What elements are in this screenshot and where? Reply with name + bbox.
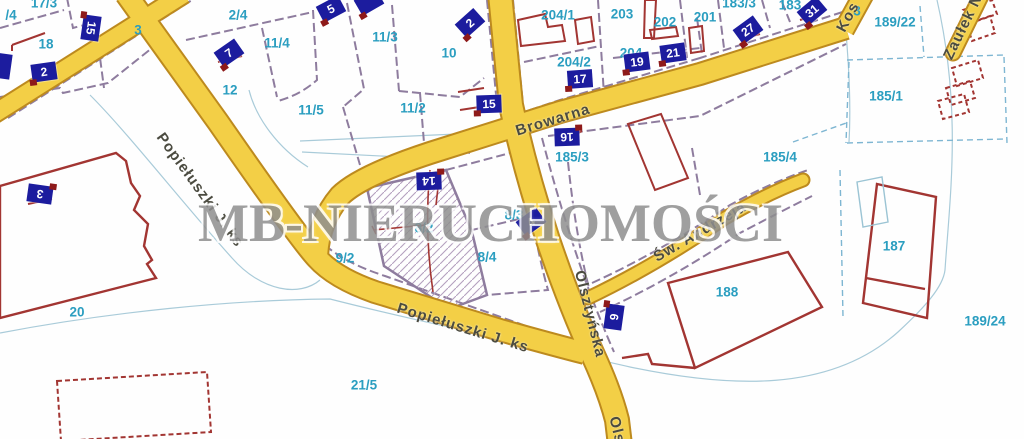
parcel-number-label: 20 (69, 305, 84, 320)
parcel-number-label: 9/2 (336, 251, 355, 266)
parcel-number-label: 11/4 (264, 36, 290, 51)
parcel-number-label: 3 (134, 23, 142, 38)
parcel-number-label: 203 (611, 7, 634, 22)
parcel-number-label: 8/2 (415, 221, 434, 236)
parcel-number-label: 17/3 (31, 0, 57, 11)
house-number-badge: 19 (623, 52, 650, 73)
house-number-badge: 6 (603, 303, 624, 330)
parcel-number-label: 202 (654, 15, 677, 30)
parcel-number-label: 185/1 (869, 89, 903, 104)
house-number-badge: 2 (30, 61, 57, 82)
house-number-badge: 21 (659, 42, 686, 63)
house-number-badge: 14 (416, 172, 442, 191)
parcel-number-label: 11/2 (400, 101, 426, 116)
parcel-number-label: 189/22 (874, 15, 915, 30)
parcel-number-label: 12 (222, 83, 237, 98)
parcel-number-label: 21/5 (351, 378, 377, 393)
parcel-number-label: 187 (883, 239, 906, 254)
parcel-number-label: 11/5 (298, 103, 324, 118)
house-number-badge: 16 (554, 128, 580, 147)
house-number-badge: 15 (80, 14, 101, 41)
dashed-parcel-lines-blue (793, 6, 1007, 317)
parcel-number-label: 8/4 (478, 250, 497, 265)
parcel-number-label: /4 (5, 8, 16, 23)
parcel-number-label: 2/4 (229, 8, 248, 23)
parcel-number-label: 10 (441, 46, 456, 61)
parcel-number-label: 183/3 (722, 0, 756, 11)
parcel-number-label: 18 (38, 37, 53, 52)
parcel-number-label: 185/4 (763, 150, 797, 165)
house-number-badge: 17 (567, 69, 593, 89)
road-fills (0, 0, 982, 439)
parcel-number-label: 204/1 (541, 8, 575, 23)
cadastral-map[interactable]: 17/3/4182/4311/411/3101211/511/2204/1203… (0, 0, 1024, 439)
parcel-number-label: 189/24 (964, 314, 1005, 329)
house-number-badge: 3 (26, 183, 53, 204)
parcel-number-label: 188 (716, 285, 739, 300)
parcel-number-label: 185/3 (555, 150, 589, 165)
road-casings (0, 0, 982, 439)
parcel-number-label: 201 (694, 10, 717, 25)
parcel-number-label: 11/3 (372, 30, 398, 45)
parcel-number-label: 204/2 (557, 55, 591, 70)
house-number-badge: 15 (476, 95, 502, 114)
